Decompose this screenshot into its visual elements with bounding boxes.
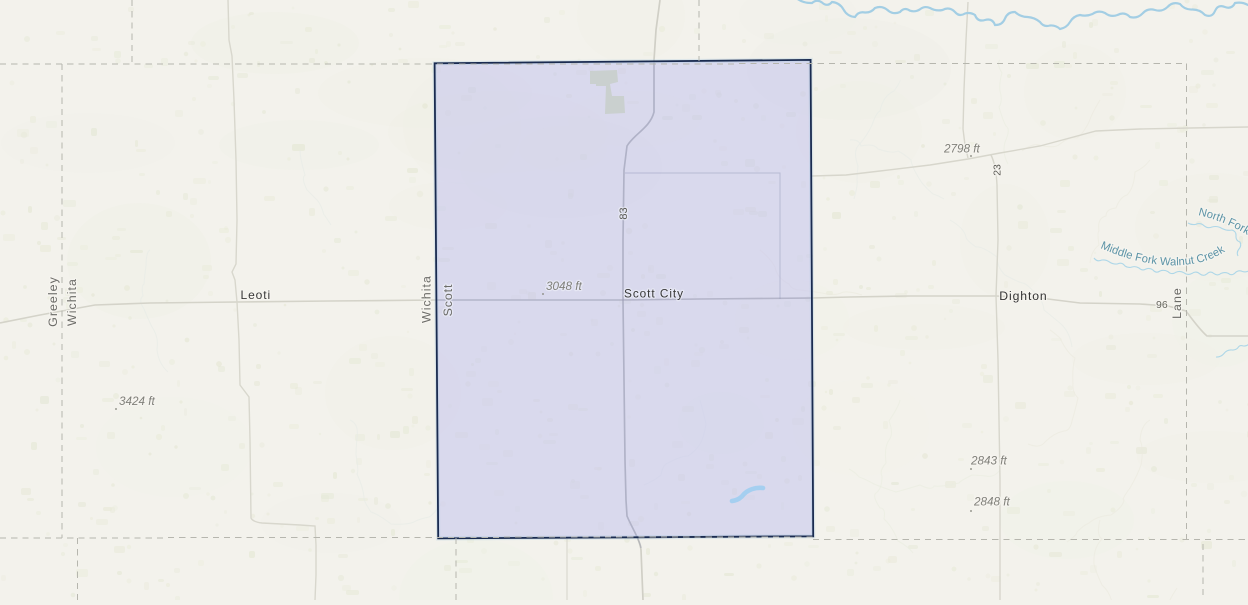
svg-text:96: 96 <box>1156 299 1168 311</box>
svg-text:Lane: Lane <box>1170 287 1184 319</box>
svg-text:3048 ft: 3048 ft <box>546 280 582 293</box>
svg-text:Scott: Scott <box>441 284 455 317</box>
svg-text:Scott City: Scott City <box>624 286 684 300</box>
svg-text:2798 ft: 2798 ft <box>943 143 980 156</box>
svg-text:23: 23 <box>993 164 1004 176</box>
svg-text:2843 ft: 2843 ft <box>970 455 1007 468</box>
svg-text:2848 ft: 2848 ft <box>973 496 1010 509</box>
svg-text:Greeley: Greeley <box>46 276 60 327</box>
svg-text:Wichita: Wichita <box>65 278 79 326</box>
svg-text:83: 83 <box>618 207 630 219</box>
svg-text:Dighton: Dighton <box>999 289 1047 303</box>
svg-text:Leoti: Leoti <box>241 288 272 302</box>
svg-text:3424 ft: 3424 ft <box>119 395 155 408</box>
svg-text:Wichita: Wichita <box>419 275 433 323</box>
